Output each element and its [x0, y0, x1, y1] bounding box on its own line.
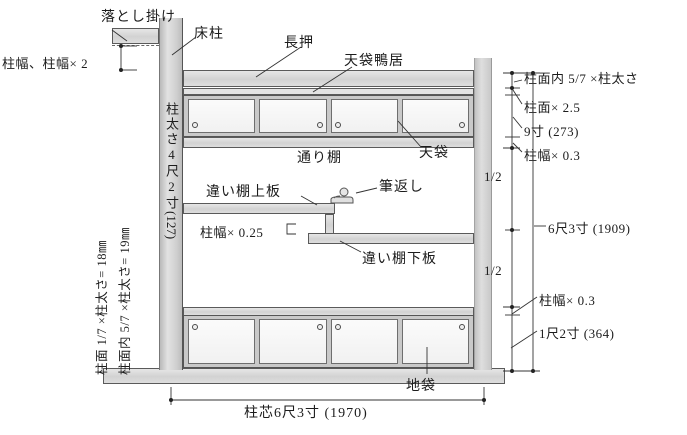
dim-right-haba03-upper: 柱幅× 0.3 — [524, 145, 580, 164]
otoshigake-dashed-line — [112, 45, 159, 46]
dim-right-half-upper: 1/2 — [484, 169, 502, 185]
tenbukuro-door — [259, 99, 326, 133]
note-pillar-face-inner: 柱面内 5/7 ×柱太さ= 19㎜ — [114, 227, 129, 375]
door-pull-icon — [317, 324, 323, 330]
floor-board — [103, 368, 505, 384]
label-jibukuro: 地袋 — [406, 375, 436, 395]
ebizuka-strut — [325, 214, 334, 234]
label-tenbukuro: 天袋 — [419, 142, 449, 162]
dim-bottom-span: 柱芯6尺3寸 (1970) — [244, 402, 368, 422]
tenbukuro-door — [402, 99, 469, 133]
tokonoma-elevation-diagram: 落とし掛け 床柱 長押 天袋鴨居 天袋 通り棚 違い棚上板 筆返し 違い棚下板 … — [0, 0, 687, 435]
chigaidana-upper-shelf — [183, 203, 335, 214]
dim-right-6shaku3sun: 6尺3寸 (1909) — [548, 218, 630, 237]
jibukuro-door — [188, 319, 255, 364]
label-chigaidana-upper: 違い棚上板 — [206, 181, 281, 201]
label-otoshigake: 落とし掛け — [101, 6, 176, 26]
label-tenbukuro-kamoi: 天袋鴨居 — [344, 50, 404, 70]
door-pull-icon — [459, 324, 465, 330]
pillar-thickness-text: 柱太さ4尺2寸 — [164, 102, 179, 211]
door-pull-icon — [459, 122, 465, 128]
note-pillar-face: 柱面 1/7 ×柱太さ= 18㎜ — [91, 240, 106, 375]
tenbukuro-door — [331, 99, 398, 133]
tenbukuro-kamoi-rail — [183, 88, 474, 95]
label-fudegaeshi: 筆返し — [379, 176, 424, 196]
door-pull-icon — [192, 122, 198, 128]
jibukuro-door — [259, 319, 326, 364]
dim-right-9sun: 9寸 (273) — [524, 121, 579, 140]
jibukuro-cabinet — [183, 315, 474, 368]
dim-right-half-lower: 1/2 — [484, 263, 502, 279]
pillar-thickness-value: (127) — [164, 211, 179, 239]
door-pull-icon — [335, 324, 341, 330]
tenbukuro-door — [188, 99, 255, 133]
otoshigake-beam — [112, 28, 159, 44]
nageshi-rail — [183, 70, 474, 87]
door-pull-icon — [317, 122, 323, 128]
chigaidana-lower-shelf — [308, 233, 474, 244]
jibukuro-door — [331, 319, 398, 364]
dim-right-men25: 柱面× 2.5 — [524, 97, 580, 116]
label-chigaidana-lower: 違い棚下板 — [362, 248, 437, 268]
label-nageshi: 長押 — [284, 32, 314, 52]
fudegaeshi-ornament — [331, 188, 353, 203]
label-tokobashira: 床柱 — [194, 23, 224, 43]
dim-top-left: 柱幅、柱幅× 2 — [2, 53, 88, 72]
door-pull-icon — [335, 122, 341, 128]
right-pillar — [474, 58, 492, 370]
tenbukuro-cabinet — [183, 95, 474, 137]
dim-right-menuuchi: 柱面内 5/7 ×柱太さ — [524, 68, 638, 87]
jibukuro-door — [402, 319, 469, 364]
pillar-thickness-label: 柱太さ4尺2寸(127) — [162, 102, 183, 239]
door-pull-icon — [192, 324, 198, 330]
dim-right-haba03-lower: 柱幅× 0.3 — [539, 290, 595, 309]
dim-shelf-offset: 柱幅× 0.25 — [200, 222, 263, 241]
label-toridana: 通り棚 — [297, 147, 342, 167]
dim-right-1shaku2sun: 1尺2寸 (364) — [539, 323, 614, 342]
